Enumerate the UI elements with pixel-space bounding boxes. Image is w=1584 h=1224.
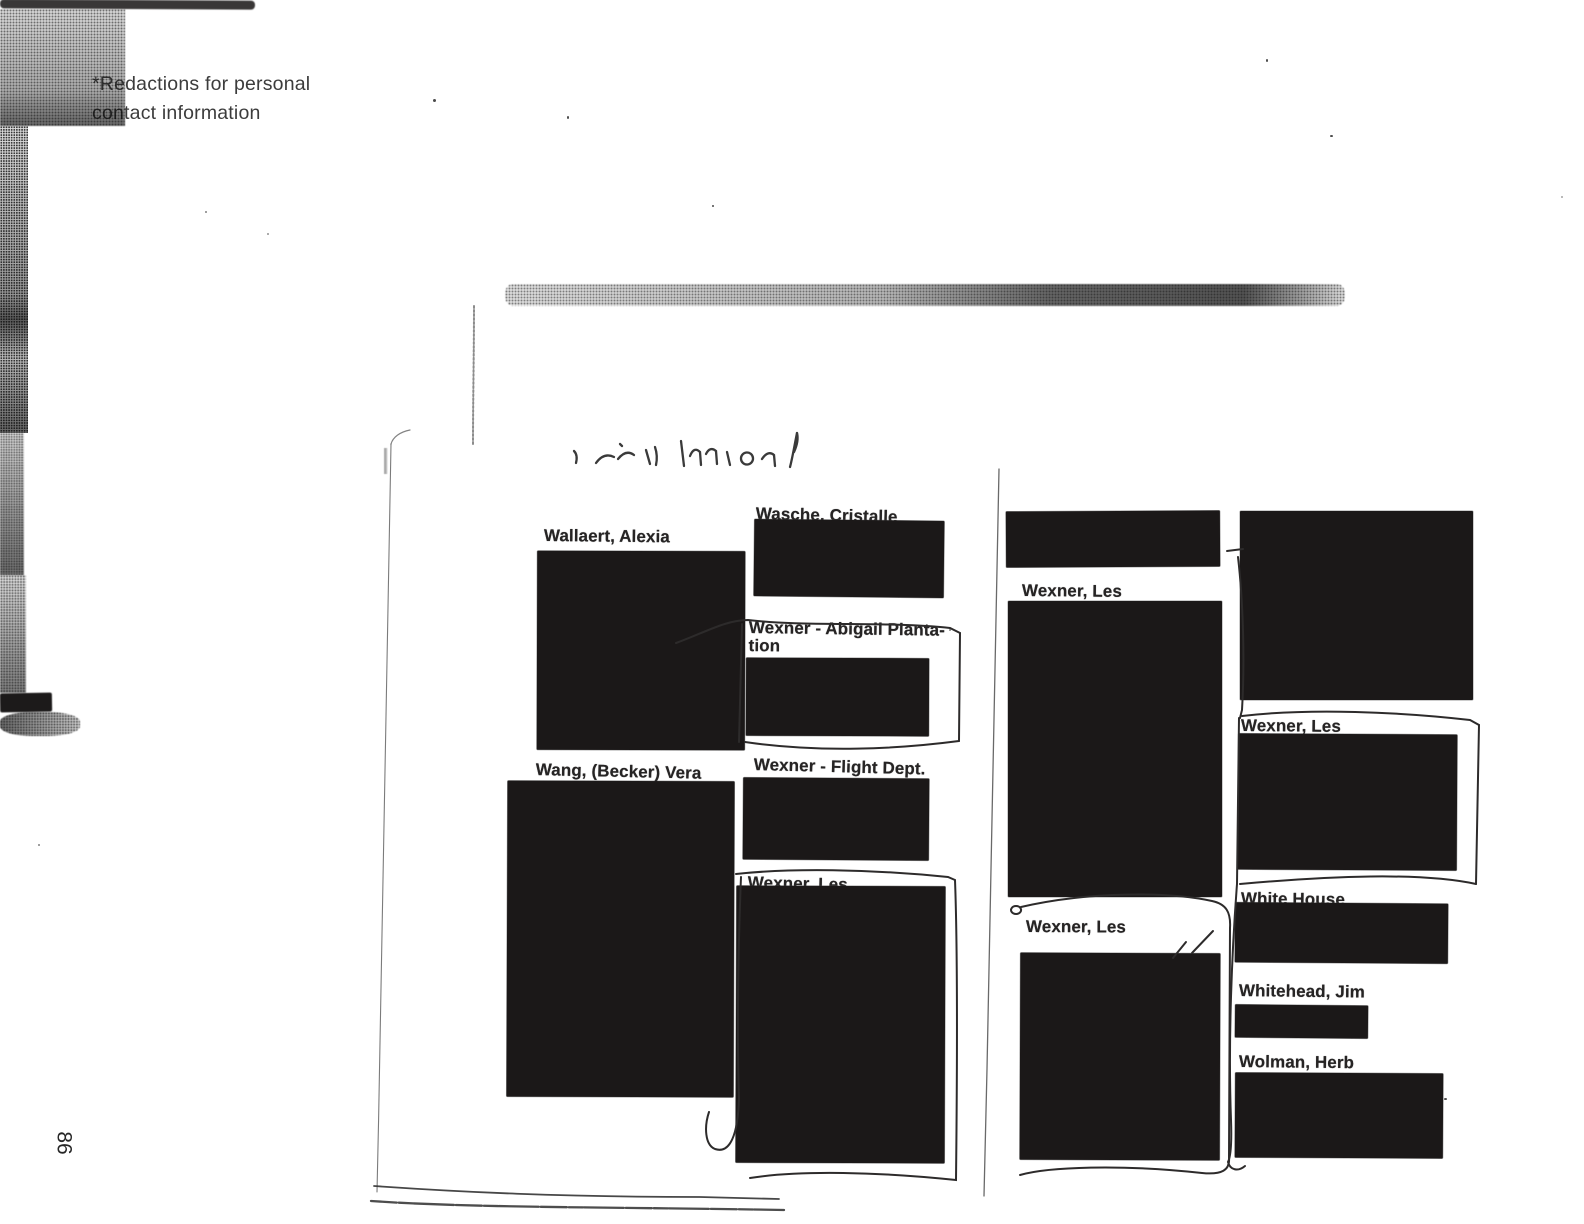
redaction-box-wexner-abigail	[746, 658, 929, 737]
redaction-box-unlabeled-col3-top	[1006, 510, 1220, 567]
redaction-disclaimer-note: *Redactions for personal contact informa…	[92, 70, 392, 128]
scan-speck	[712, 205, 714, 207]
left-page-edge-line	[377, 444, 391, 1192]
handwriting-scribble	[574, 433, 798, 467]
scan-speck	[1330, 135, 1333, 137]
entry-label-wexner-les-col3-top: Wexner, Les	[1022, 581, 1122, 602]
scanned-document-page: { "document": { "kind": "redacted addres…	[0, 0, 1584, 1224]
bottom-scan-line	[374, 1186, 779, 1199]
redaction-box-wang	[506, 781, 734, 1098]
scan-artifact-crease-shadow	[0, 433, 24, 575]
pen-arrow-mark	[1192, 931, 1213, 953]
redaction-box-white-house	[1235, 902, 1448, 963]
pen-outline-wexner-les-col4	[1240, 876, 1476, 884]
redaction-box-whitehead	[1235, 1004, 1368, 1038]
pen-loop-wexner-les-col3	[1011, 906, 1021, 914]
entry-label-wolman: Wolman, Herb	[1239, 1052, 1354, 1073]
scan-artifact-corner-smudge	[0, 9, 125, 126]
entry-label-wallaert: Wallaert, Alexia	[544, 526, 670, 547]
redaction-disclaimer-line1: *Redactions for personal	[92, 70, 392, 99]
redaction-box-wexner-les-col4	[1238, 733, 1458, 870]
entry-label-wexner-abigail: Wexner - Abigail Planta- tion	[748, 619, 963, 658]
scan-speck	[433, 99, 436, 102]
redaction-box-wexner-les-col3-bottom	[1020, 953, 1221, 1161]
redaction-box-wexner-les-center	[736, 886, 946, 1164]
entry-label-wexner-flight: Wexner - Flight Dept.	[753, 755, 925, 779]
redaction-box-wexner-les-col3-top	[1008, 601, 1222, 897]
scan-speck	[1266, 59, 1268, 62]
scan-speck	[267, 233, 269, 235]
scan-speck	[1444, 1098, 1447, 1100]
left-page-edge-hook	[391, 430, 410, 444]
pen-outline-wexner-abigail	[745, 741, 959, 749]
entry-label-wexner-les-col3-bottom: Wexner, Les	[1026, 917, 1126, 938]
scan-artifact-crease-shadow	[0, 575, 26, 693]
scan-artifact-corner-smudge-bar	[0, 126, 28, 433]
scan-speck	[567, 116, 569, 119]
bottom-scan-line	[371, 1201, 784, 1210]
entry-label-wexner-abigail-line1: Wexner - Abigail Planta-	[749, 619, 964, 640]
center-crease-line	[984, 469, 999, 1196]
scan-speck	[205, 211, 207, 213]
entry-label-wexner-abigail-line2: tion	[748, 637, 963, 658]
entry-label-whitehead: Whitehead, Jim	[1239, 981, 1365, 1003]
redaction-box-unlabeled-col4-top	[1240, 511, 1473, 700]
redaction-box-wexner-flight	[743, 777, 930, 860]
redaction-box-wallaert	[537, 551, 746, 751]
redaction-box-wolman	[1235, 1072, 1443, 1158]
left-page-edge-speckle	[473, 306, 474, 444]
scan-artifact-left-smudge	[0, 712, 80, 736]
scan-speck	[38, 844, 40, 846]
scan-artifact-top-edge-band	[505, 284, 1345, 306]
scan-speck	[1561, 196, 1563, 198]
redaction-box-wasche	[754, 519, 945, 598]
scan-artifact-edge-tick	[384, 448, 387, 474]
redaction-disclaimer-line2: contact information	[92, 99, 392, 128]
scan-artifact-crease-shadow-foot	[0, 693, 52, 713]
page-number: 86	[52, 1131, 76, 1154]
